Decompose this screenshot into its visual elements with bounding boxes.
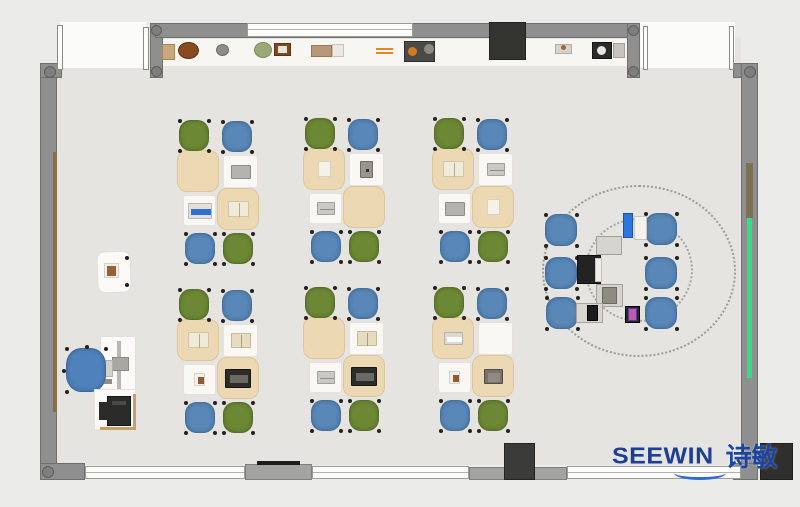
brand-wordmark-chinese: 诗敏 bbox=[726, 444, 778, 470]
chair-foot bbox=[104, 347, 108, 351]
side-desk-knob bbox=[125, 283, 129, 287]
classroom-floorplan: SEEWIN 诗敏 bbox=[0, 0, 800, 507]
chair-foot bbox=[65, 347, 69, 351]
printer-slot bbox=[112, 401, 126, 405]
brand-logo: SEEWIN 诗敏 bbox=[612, 444, 778, 470]
side-desk-photo-inner bbox=[107, 266, 116, 276]
chair-foot bbox=[62, 369, 66, 373]
printer-table-edge bbox=[100, 427, 136, 430]
brand-swoosh-icon bbox=[674, 466, 726, 480]
chair-foot bbox=[65, 390, 69, 394]
printer-wing bbox=[99, 402, 111, 420]
teacher-station bbox=[0, 0, 800, 507]
monitor bbox=[112, 357, 129, 371]
printer-table-edge bbox=[133, 394, 136, 430]
teacher-chair bbox=[66, 348, 106, 392]
brand-wordmark: SEEWIN bbox=[612, 445, 714, 468]
side-desk-knob bbox=[125, 256, 129, 260]
chair-foot bbox=[85, 345, 89, 349]
